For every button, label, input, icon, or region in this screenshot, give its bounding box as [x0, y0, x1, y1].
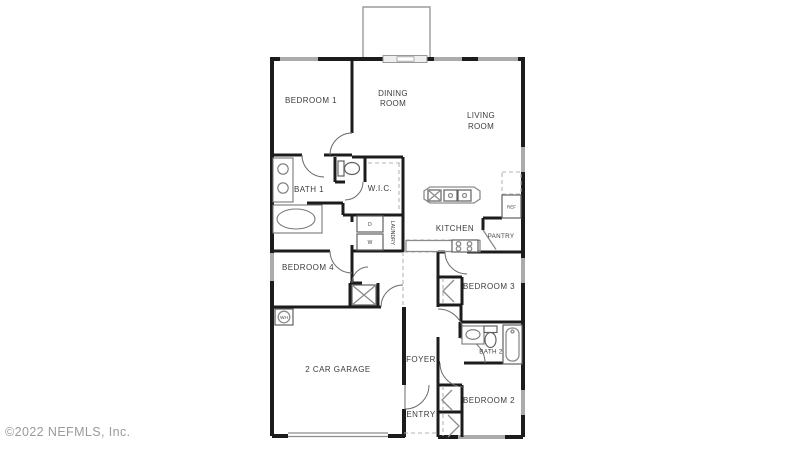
dryer-label: D	[368, 222, 372, 228]
porch-outline	[363, 7, 430, 59]
garage-door-icon	[288, 433, 388, 437]
floor-plan-svg: D W LAUNDRY REF WH	[0, 0, 800, 450]
watermark: ©2022 NEFMLS, Inc.	[5, 425, 131, 439]
bedroom3-label: BEDROOM 3	[463, 282, 515, 291]
bath2-toilet-tank-icon	[484, 326, 497, 333]
garage-label: 2 CAR GARAGE	[305, 365, 370, 374]
bath1-sink1-icon	[278, 164, 288, 174]
wc-door-arc	[345, 182, 363, 200]
laundry-label: LAUNDRY	[389, 221, 395, 246]
living-room-label-line2: ROOM	[468, 122, 494, 131]
island-sink2-icon	[458, 190, 471, 201]
bath2-fixtures	[462, 325, 522, 364]
cabinet-above-ref-icon	[502, 172, 521, 194]
dining-window-pane-icon	[397, 57, 414, 61]
bedroom1-label: BEDROOM 1	[285, 96, 337, 105]
bath1-tub-icon	[277, 209, 315, 229]
garage-door-arc	[381, 285, 403, 307]
utility-fixtures: WH	[275, 285, 376, 325]
kitchen-label: KITCHEN	[436, 224, 474, 233]
laundry-appliances: D W LAUNDRY	[357, 216, 395, 250]
bedroom2-label: BEDROOM 2	[463, 396, 515, 405]
bedroom2-door-arc	[440, 363, 464, 387]
water-heater-label: WH	[280, 315, 288, 320]
entry-closet-door-icon	[448, 415, 459, 437]
entry-label: ENTRY	[406, 410, 435, 419]
living-room-label-line1: LIVING	[467, 111, 495, 120]
bath1-fixtures	[273, 158, 360, 233]
bedroom3-door-arc	[445, 252, 467, 274]
entry-door-arc	[405, 385, 429, 409]
bath2-sink-icon	[466, 330, 480, 340]
dining-room-label-line2: ROOM	[380, 99, 406, 108]
pantry-label: PANTRY	[488, 233, 515, 240]
bedroom3-closet-door-icon	[443, 280, 454, 302]
bedroom1-door-arc	[330, 133, 352, 155]
bath2-toilet-bowl-icon	[485, 333, 496, 348]
bath1-toilet-tank-icon	[338, 161, 344, 176]
bedroom4-label: BEDROOM 4	[282, 263, 334, 272]
bath1-toilet-bowl-icon	[345, 163, 360, 175]
ac-closet-door-arc	[352, 267, 368, 283]
refrigerator-label: REF	[507, 205, 516, 210]
room-labels: BEDROOM 1 DINING ROOM LIVING ROOM BATH 1…	[282, 89, 515, 419]
kitchen-fixtures: REF	[406, 172, 521, 252]
bath1-label: BATH 1	[294, 185, 324, 194]
range-icon	[452, 240, 478, 252]
dining-room-label-line1: DINING	[378, 89, 408, 98]
bath2-label: BATH 2	[479, 349, 503, 356]
foyer-label: FOYER	[406, 355, 436, 364]
island-sink1-icon	[444, 190, 457, 201]
bath1-door-arc	[302, 155, 324, 177]
floor-plan: D W LAUNDRY REF WH	[0, 0, 800, 450]
bath1-sink2-icon	[278, 183, 288, 193]
washer-label: W	[368, 240, 373, 246]
wic-label: W.I.C.	[368, 184, 392, 193]
